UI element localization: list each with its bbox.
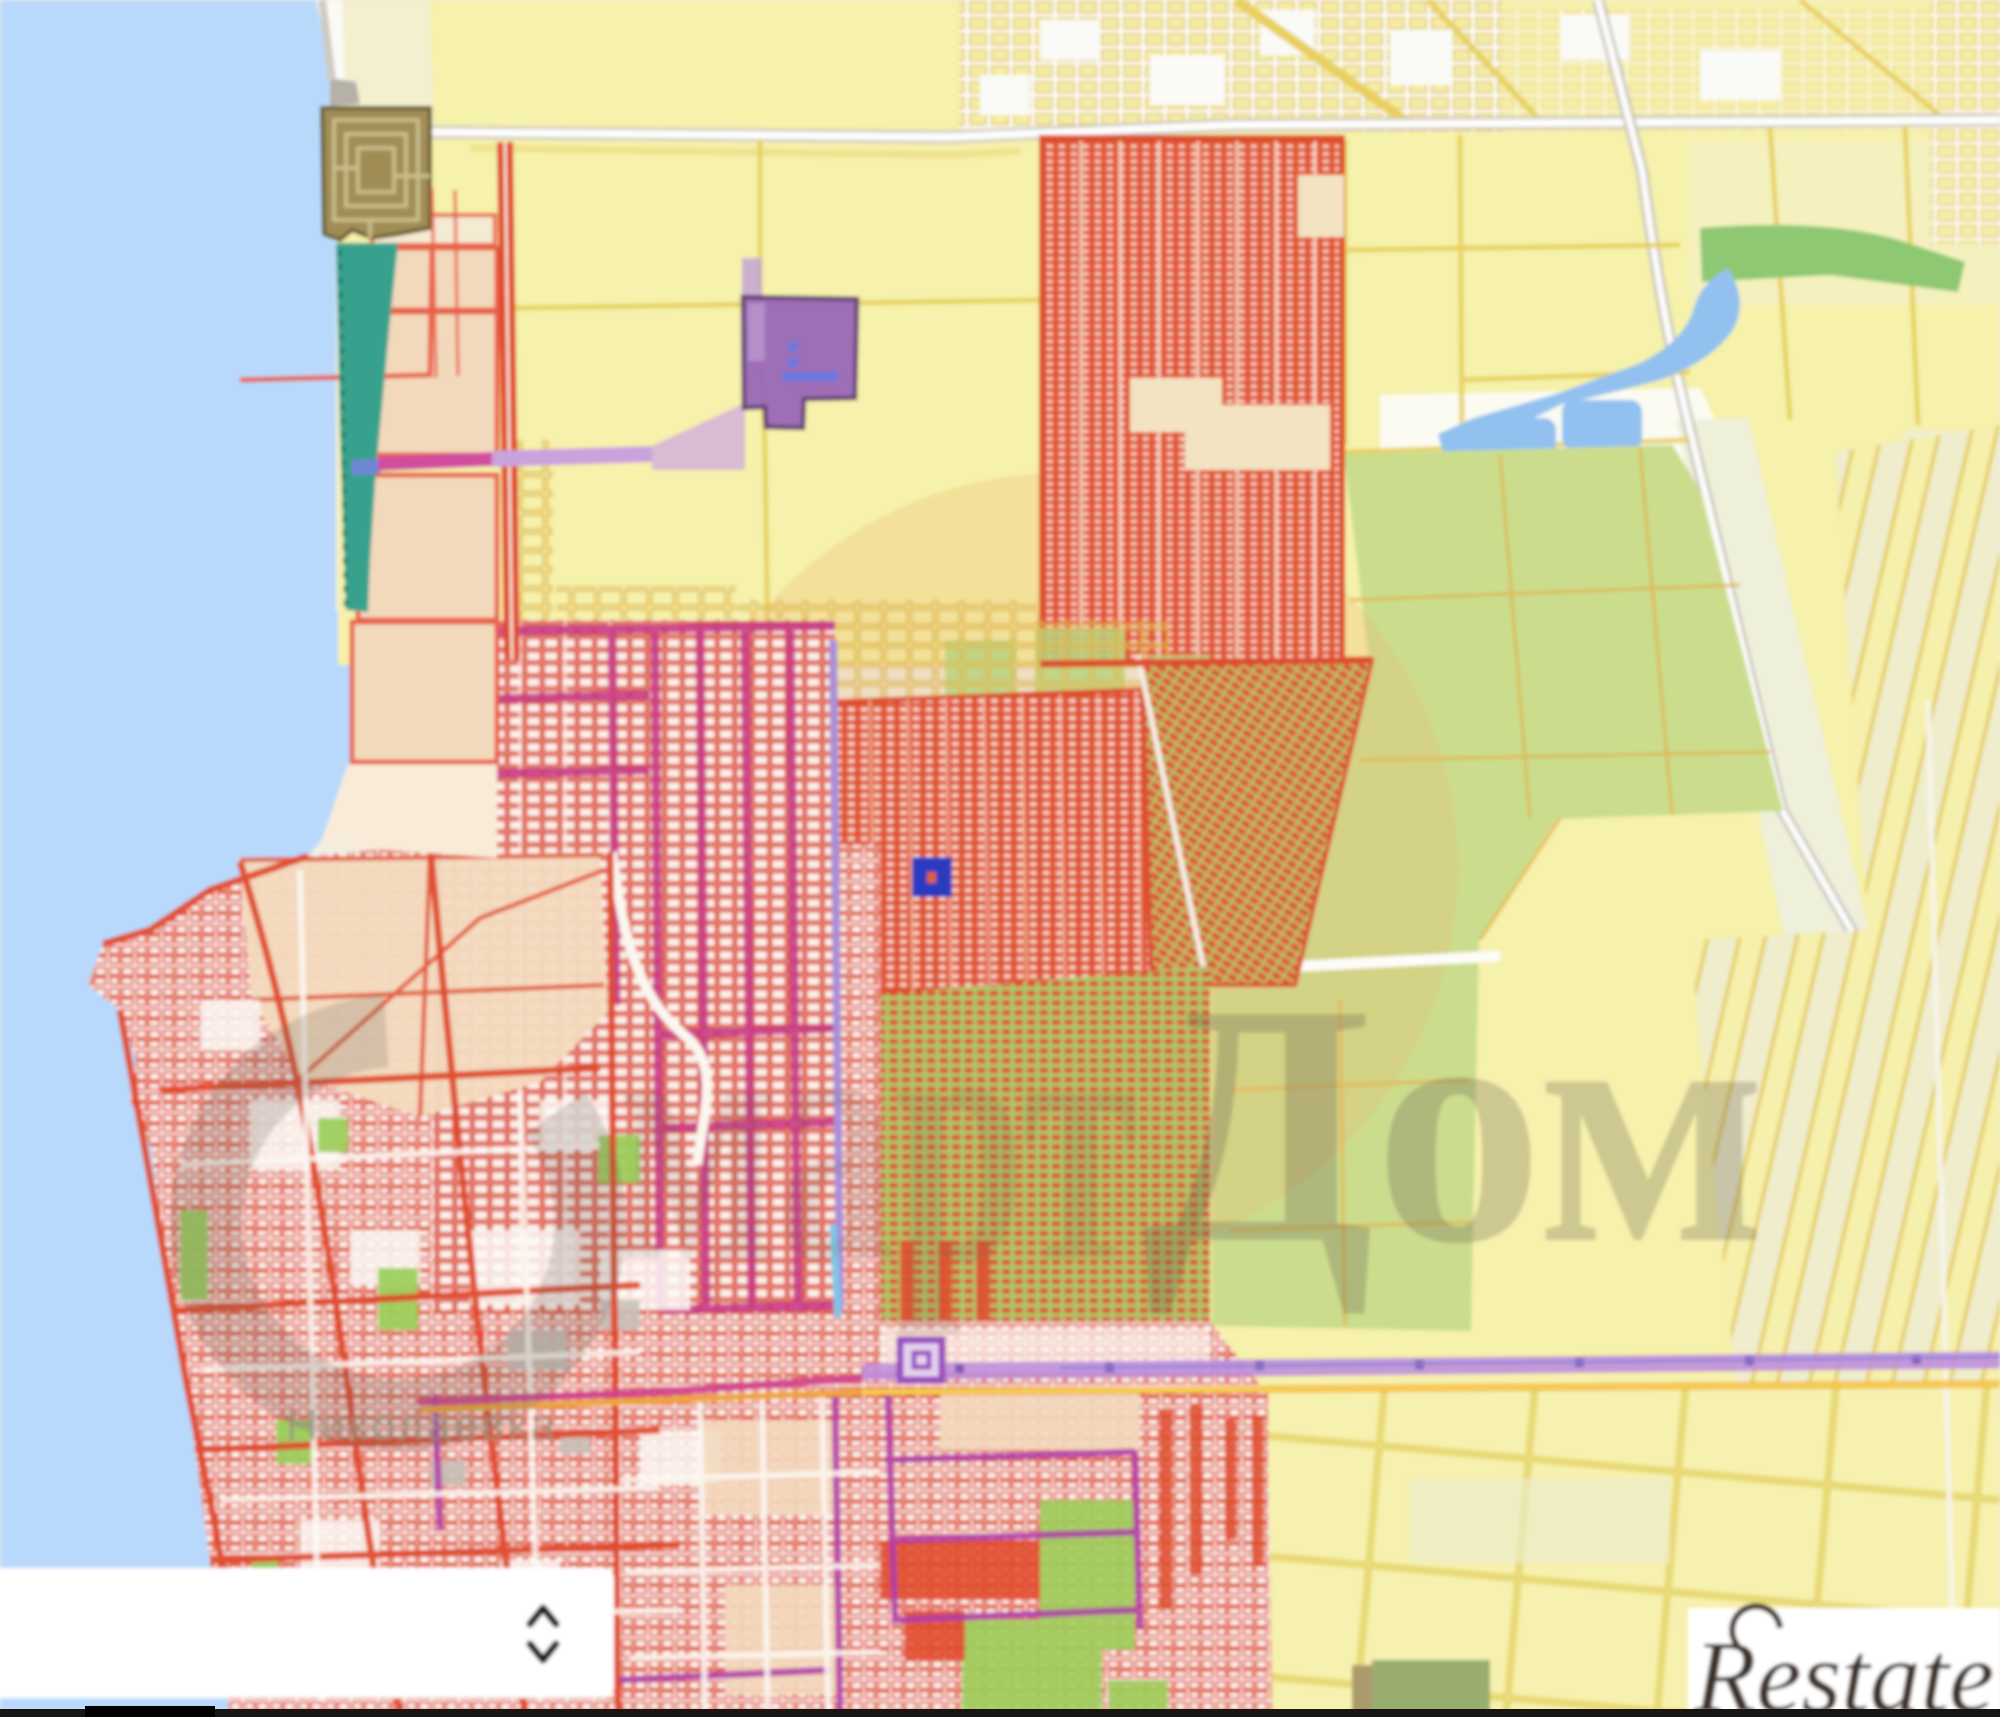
svg-text:Николаевка: Николаевка: [286, 1401, 558, 1450]
svg-text:Restate: Restate: [1693, 1621, 1994, 1717]
svg-text:Дом: Дом: [1142, 933, 1767, 1315]
svg-text:март: март: [618, 937, 1138, 1337]
